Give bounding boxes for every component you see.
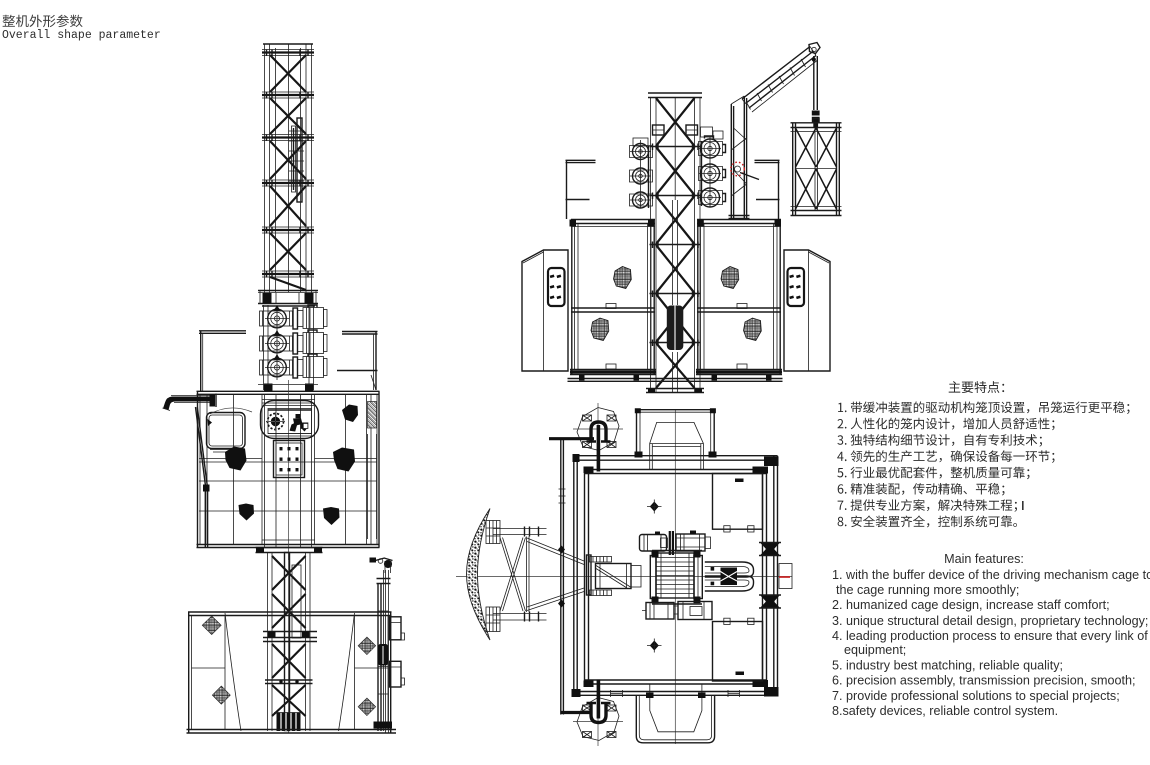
svg-text:3. unique structural detail de: 3. unique structural detail design, prop… [832,614,1148,628]
svg-text:the cage running more smoothly: the cage running more smoothly; [836,583,1019,597]
svg-text:4. leading production process: 4. leading production process to ensure … [832,629,1150,643]
svg-text:8.safety devices, reliable con: 8.safety devices, reliable control syste… [832,704,1058,718]
svg-text:Overall shape parameter: Overall shape parameter [2,29,161,42]
svg-text:5. industry best matching, rel: 5. industry best matching, reliable qual… [832,659,1063,673]
svg-text:Main features:: Main features: [944,552,1024,566]
svg-text:1. with the buffer device of t: 1. with the buffer device of the driving… [832,568,1150,582]
svg-text:7. provide professional soluti: 7. provide professional solutions to spe… [832,689,1120,703]
svg-text:2. humanized cage design, incr: 2. humanized cage design, increase staff… [832,598,1110,612]
svg-text:equipment;: equipment; [844,643,906,657]
svg-text:6. precision assembly, transmi: 6. precision assembly, transmission prec… [832,674,1136,688]
